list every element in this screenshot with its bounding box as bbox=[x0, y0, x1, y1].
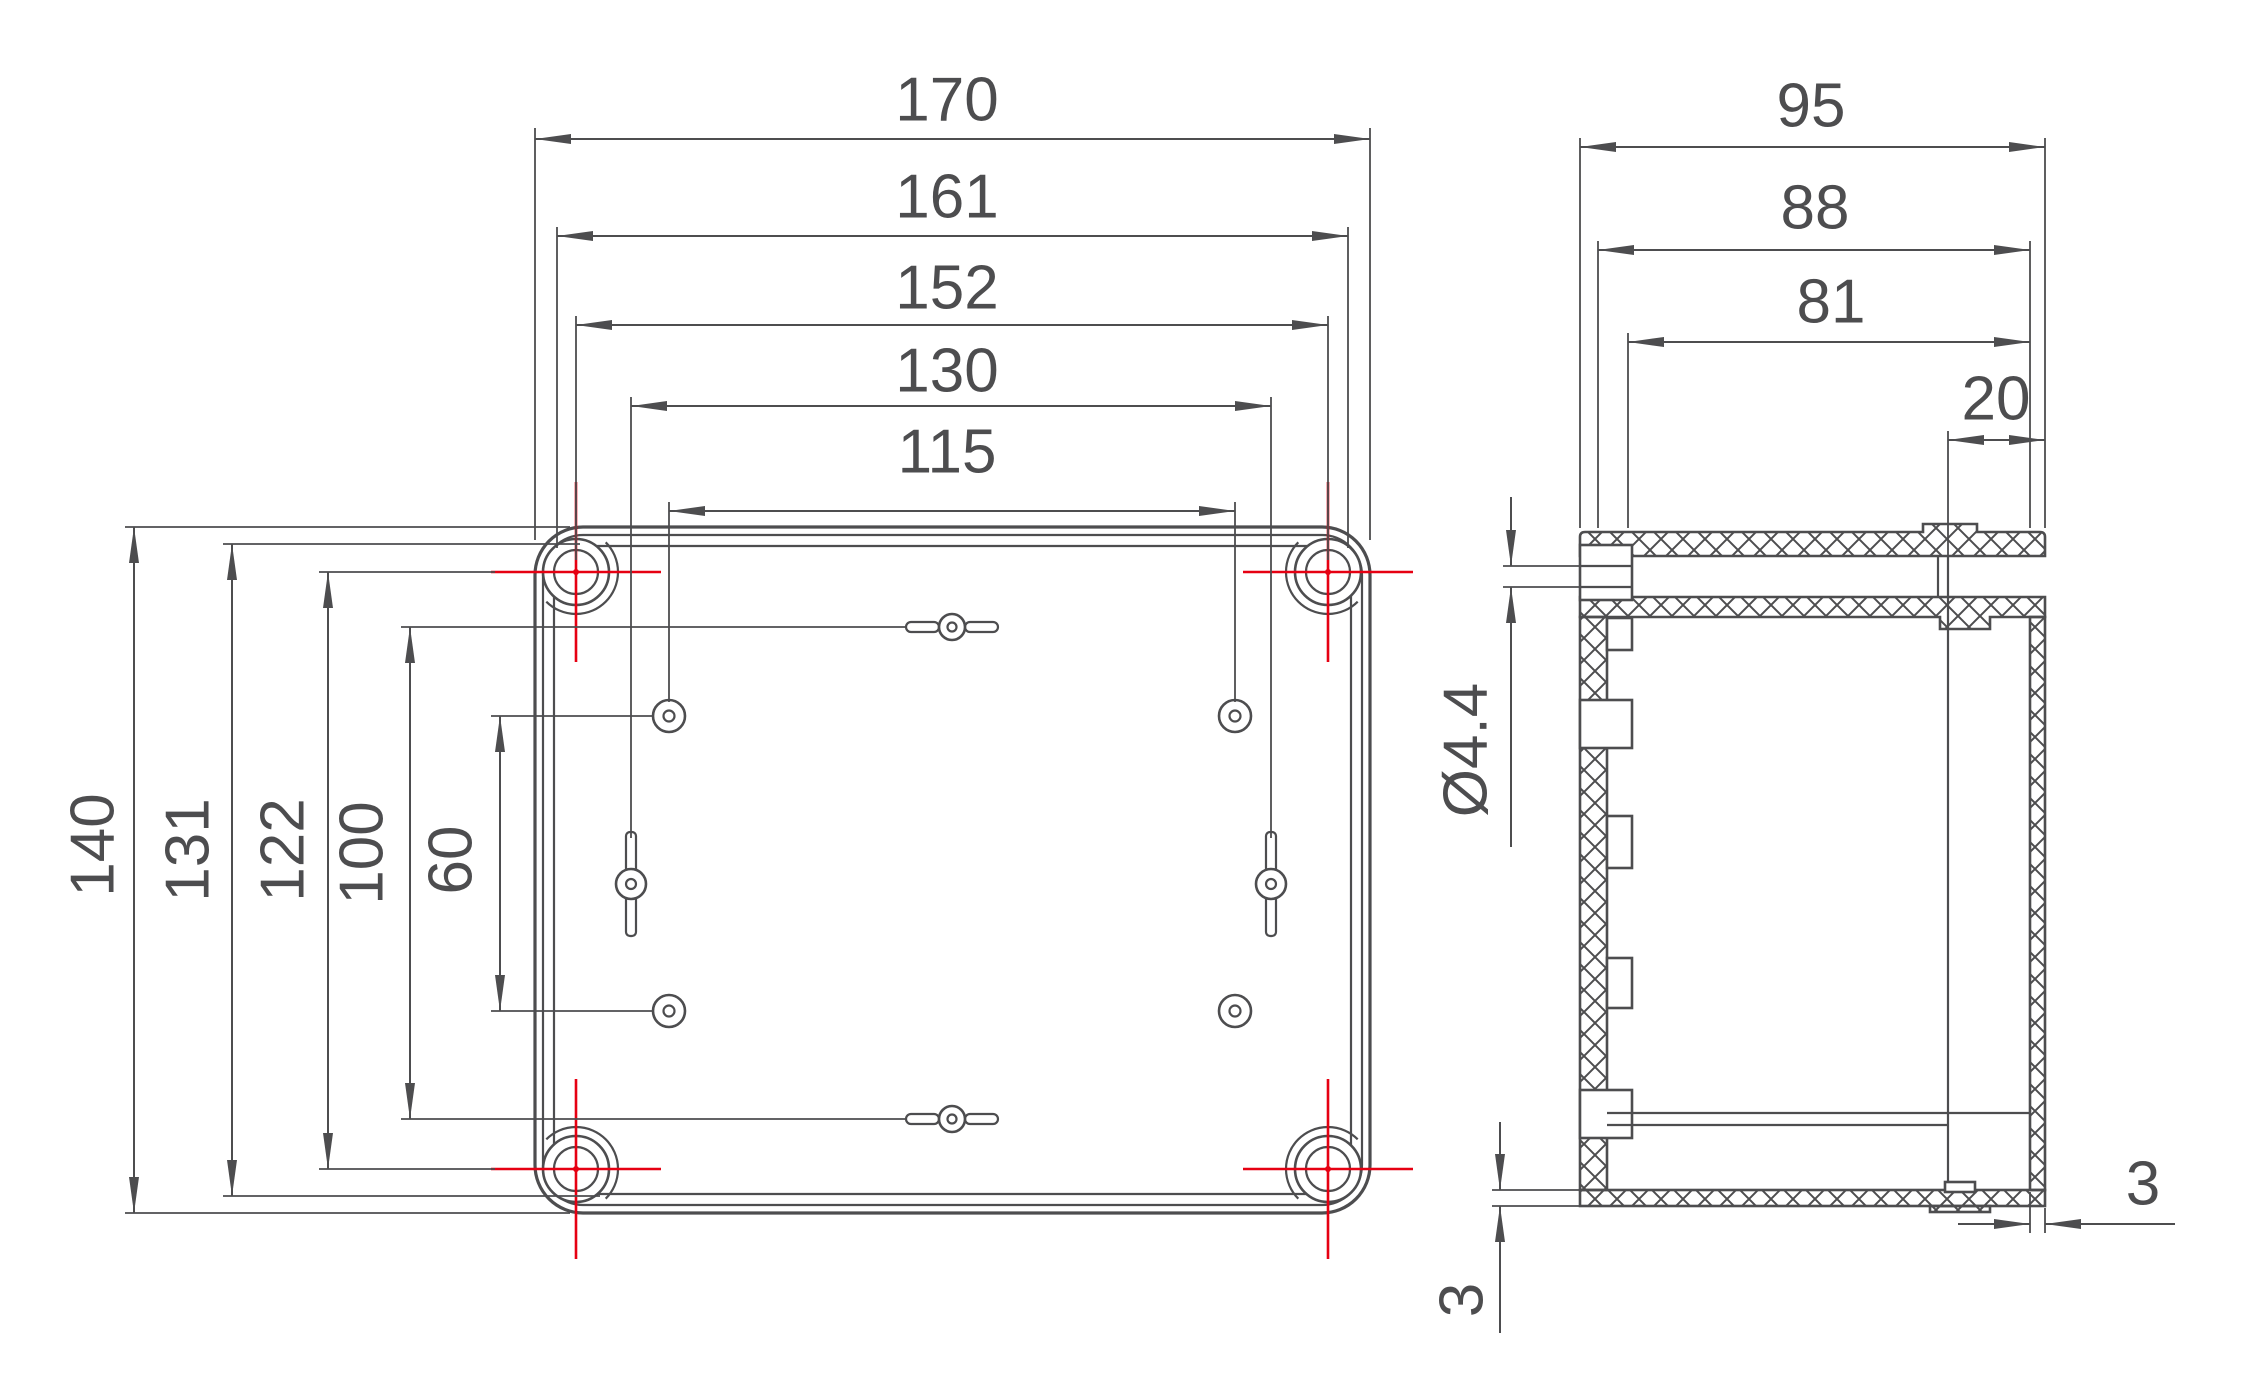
winged-hole-bottom bbox=[906, 1106, 998, 1132]
drawing-svg: 170 161 152 130 115 140 bbox=[0, 0, 2244, 1394]
plan-lid-contour-2 bbox=[554, 546, 1351, 1194]
dim-plan-lid-width: 161 bbox=[895, 163, 998, 232]
side-screw-boss bbox=[1580, 545, 1632, 600]
corner-screw-top-left bbox=[543, 539, 635, 631]
corner-screw-top-right bbox=[1269, 539, 1361, 631]
dim-plan-screw-spacing-h: 152 bbox=[895, 254, 998, 323]
side-base-thickness-dimension: 3 bbox=[1428, 1122, 1593, 1333]
side-right-wall-section bbox=[2030, 617, 2045, 1190]
plan-view: 170 161 152 130 115 140 bbox=[59, 66, 1414, 1260]
keyhole-slots bbox=[616, 832, 1286, 936]
dim-plan-center-hole-spacing: 100 bbox=[328, 801, 397, 904]
technical-drawing-sheet: 170 161 152 130 115 140 bbox=[0, 0, 2244, 1394]
side-base-step bbox=[1930, 1206, 1990, 1212]
side-view: 95 88 81 20 Ø4.4 bbox=[1428, 72, 2176, 1334]
dim-plan-hole-spacing-h: 115 bbox=[898, 418, 997, 487]
side-interior-edges bbox=[1607, 556, 2030, 1192]
dim-plan-screw-spacing-v: 122 bbox=[249, 798, 318, 901]
dim-side-lid-depth: 88 bbox=[1781, 174, 1850, 243]
small-holes bbox=[653, 700, 1251, 1027]
dim-side-wall-thickness: 3 bbox=[2126, 1150, 2160, 1219]
side-hole-diameter-dimension: Ø4.4 bbox=[1432, 497, 1581, 847]
dim-plan-outer-height: 140 bbox=[59, 793, 128, 896]
dim-side-cover-height: 20 bbox=[1962, 365, 2031, 434]
side-flange-section bbox=[1580, 597, 2045, 629]
corner-screw-bottom-left bbox=[543, 1110, 635, 1202]
dim-plan-lid-height: 131 bbox=[154, 798, 223, 901]
dim-side-screw-hole-diameter: Ø4.4 bbox=[1432, 683, 1501, 817]
dim-side-overall-depth: 95 bbox=[1777, 72, 1846, 141]
side-lid-section bbox=[1580, 524, 2045, 556]
dim-side-base-thickness: 3 bbox=[1428, 1283, 1497, 1317]
dim-side-inner-depth: 81 bbox=[1797, 268, 1866, 337]
winged-hole-top bbox=[906, 614, 998, 640]
plan-vertical-dimensions: 140 131 122 100 60 bbox=[59, 527, 906, 1213]
corner-screw-bottom-right bbox=[1269, 1110, 1361, 1202]
side-horizontal-dimensions: 95 88 81 20 bbox=[1580, 72, 2045, 557]
dim-plan-keyhole-spacing: 130 bbox=[895, 337, 998, 406]
dim-plan-hole-spacing-v: 60 bbox=[417, 826, 486, 895]
dim-plan-outer-width: 170 bbox=[895, 66, 998, 135]
